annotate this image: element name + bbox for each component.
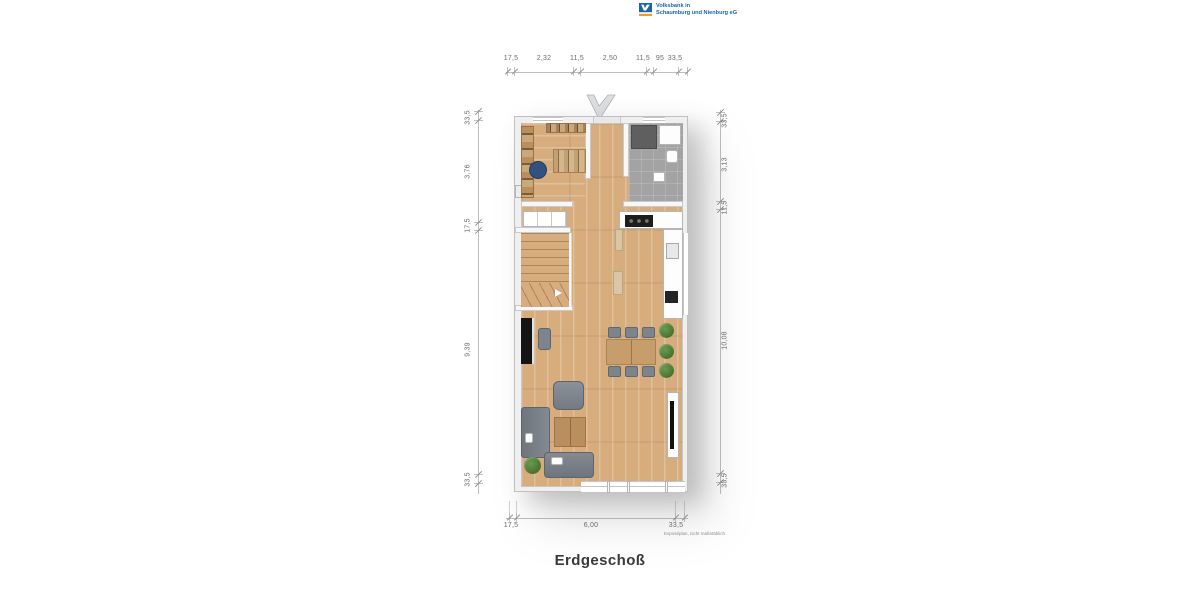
bookshelf: [546, 123, 586, 133]
dim-top-6: 33,5: [662, 55, 688, 62]
dining-chair: [608, 327, 621, 338]
sofa: [544, 452, 594, 478]
office-chair: [529, 161, 547, 179]
tick: [474, 474, 483, 475]
sofa-pillow: [525, 433, 533, 443]
plant: [659, 344, 674, 359]
window-mullion: [607, 481, 610, 493]
tick: [474, 222, 483, 223]
sofa-pillow: [551, 457, 563, 465]
tick: [684, 513, 685, 522]
kitchen-sink: [666, 243, 679, 259]
tick: [573, 67, 574, 76]
piano: [521, 318, 534, 364]
tv-screen: [670, 401, 674, 449]
window-top-bathroom: [643, 117, 665, 123]
logo-line1: Volksbank in: [656, 3, 737, 10]
piano-bench: [538, 328, 551, 350]
dim-top-3: 2,50: [597, 55, 623, 62]
dim-left-1: 3,76: [465, 159, 472, 185]
plant: [524, 457, 541, 474]
bathroom-sink: [653, 172, 665, 182]
tick: [646, 67, 647, 76]
tick: [687, 67, 688, 76]
tick: [675, 513, 676, 522]
dim-left-4: 33,5: [465, 467, 472, 493]
logo-line2: Schaumburg und Nienburg eG: [656, 10, 737, 17]
window-right: [683, 233, 689, 315]
floorplan-page: Volksbank in Schaumburg und Nienburg eG …: [0, 0, 1200, 600]
dim-right-4: 33,5: [722, 468, 729, 494]
tick: [474, 111, 483, 112]
dim-bottom-0: 17,5: [498, 522, 524, 529]
stair-railing: [569, 233, 572, 307]
terrace-window: [581, 481, 685, 493]
dim-right-0: 33,5: [722, 108, 729, 134]
tick: [474, 230, 483, 231]
dining-chair: [608, 366, 621, 377]
tick: [678, 67, 679, 76]
tick: [514, 67, 515, 76]
tick: [580, 67, 581, 76]
dim-left-3: 9,39: [465, 337, 472, 363]
window-mullion: [627, 481, 630, 493]
dining-chair: [642, 327, 655, 338]
plant: [659, 363, 674, 378]
window-mullion: [665, 481, 668, 493]
utility-counter: [523, 211, 567, 227]
cooktop: [625, 215, 653, 227]
plant: [659, 323, 674, 338]
entry-door: [593, 117, 621, 123]
dining-chair: [625, 366, 638, 377]
dim-right-1: 3,13: [722, 152, 729, 178]
building-outline: [514, 116, 688, 492]
north-arrow-icon: [584, 92, 618, 119]
dim-line-left: [478, 110, 479, 494]
coffee-table: [554, 417, 586, 447]
volksbank-logo: Volksbank in Schaumburg und Nienburg eG: [639, 3, 737, 16]
bathroom-left-wall: [623, 123, 629, 177]
shelf-unit: [553, 149, 586, 173]
dining-chair: [625, 327, 638, 338]
shower: [631, 125, 657, 149]
armchair: [553, 381, 584, 410]
floor-title: Erdgeschoß: [0, 552, 1200, 569]
tick: [509, 513, 510, 522]
tick: [507, 67, 508, 76]
dim-bottom-1: 6,00: [578, 522, 604, 529]
scale-disclaimer: Exposéplan, nicht maßstäblich: [664, 531, 736, 536]
logo-text: Volksbank in Schaumburg und Nienburg eG: [656, 3, 737, 16]
dim-left-0: 33,5: [465, 105, 472, 131]
staircase: [521, 233, 569, 283]
office-bottom-wall: [521, 201, 573, 207]
dim-line-top: [506, 72, 688, 73]
dim-right-2: 11,5: [722, 195, 729, 221]
dim-top-0: 17,5: [498, 55, 524, 62]
toilet: [666, 150, 678, 163]
dim-bottom-2: 33,5: [663, 522, 689, 529]
dining-chair: [642, 366, 655, 377]
bathroom-bottom-wall: [623, 201, 683, 207]
stair-direction-arrow: [555, 289, 562, 297]
dim-right-3: 10,08: [722, 328, 729, 354]
dim-top-2: 11,5: [564, 55, 590, 62]
dim-top-1: 2,32: [531, 55, 557, 62]
dining-table: [606, 339, 656, 365]
bathtub: [659, 125, 681, 145]
wall-stub: [615, 229, 623, 251]
tick: [474, 483, 483, 484]
tick: [653, 67, 654, 76]
volksbank-v-icon: [639, 3, 652, 16]
dim-left-2: 17,5: [465, 213, 472, 239]
tick: [474, 120, 483, 121]
kitchen-appliance: [665, 291, 678, 303]
wall-stub: [613, 271, 623, 295]
tick: [516, 513, 517, 522]
dim-line-bottom: [506, 518, 688, 519]
